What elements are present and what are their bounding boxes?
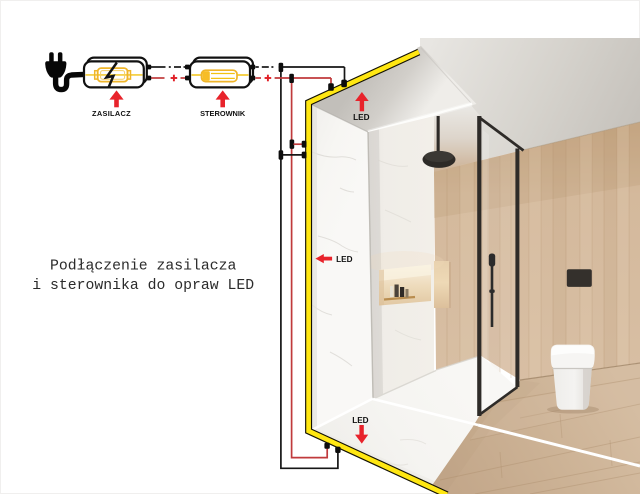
svg-text:LED: LED [352, 416, 368, 425]
svg-text:i sterownika do opraw LED: i sterownika do opraw LED [32, 278, 254, 294]
svg-text:ZASILACZ: ZASILACZ [92, 109, 131, 118]
svg-text:STEROWNIK: STEROWNIK [200, 109, 246, 118]
svg-text:LED: LED [353, 113, 369, 122]
svg-text:LED: LED [336, 255, 352, 264]
svg-text:Podłączenie zasilacza: Podłączenie zasilacza [50, 259, 237, 275]
